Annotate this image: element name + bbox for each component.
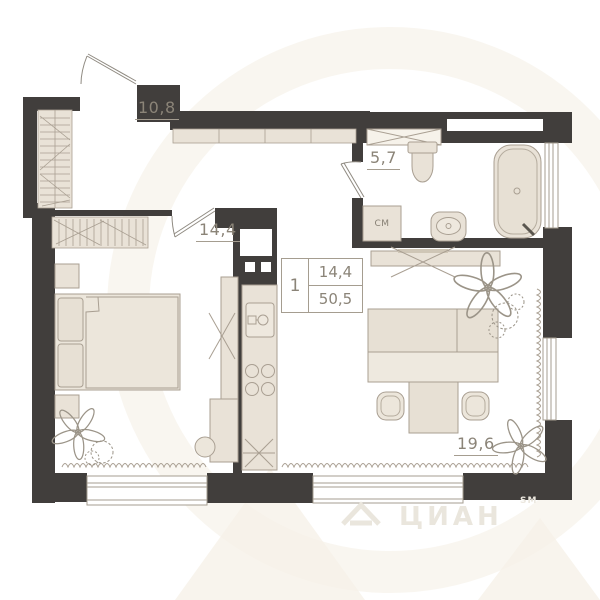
nightstand-bottom [55, 395, 79, 418]
living-furniture [368, 247, 500, 433]
toilet [408, 142, 437, 182]
area-label-bathroom: 5,7 [367, 149, 400, 170]
hall-cabinet-row [173, 129, 356, 143]
blanket [86, 297, 178, 388]
hallway-closet [38, 110, 72, 208]
living-window-right [543, 338, 556, 420]
cian-watermark-text: ЦИАН [399, 502, 503, 532]
wall-bedroom-top [55, 210, 172, 216]
summary-rooms-count: 1 [282, 259, 309, 312]
radiator-living-bottom [282, 464, 528, 468]
kitchen-sink [246, 303, 274, 337]
wall-right-mid [543, 227, 572, 338]
entrance-door [81, 54, 136, 84]
area-label-bedroom: 14,4 [196, 221, 240, 242]
chair-right [462, 392, 489, 420]
nightstand-top [55, 264, 79, 288]
pillow [58, 344, 83, 387]
area-label-living: 19,6 [454, 435, 498, 456]
bathroom-sink [431, 212, 466, 241]
bathroom-door [341, 162, 364, 198]
wall-bottom-right [463, 473, 572, 500]
wall-left [32, 203, 55, 503]
bathroom-niche [447, 119, 543, 131]
table [409, 382, 458, 433]
bed [55, 294, 180, 390]
bathtub [494, 145, 541, 238]
cian-house-icon [343, 505, 379, 524]
kitchen [242, 285, 277, 470]
bedroom-wardrobe [52, 217, 148, 248]
area-label-hallway: 10,8 [135, 99, 179, 120]
floorplan-canvas: 10,8 14,4 5,7 19,6 1 14,4 50,5 СМ ЦИАН S… [0, 0, 600, 600]
bathroom-window [545, 143, 558, 228]
summary-total-area: 50,5 [309, 286, 362, 312]
bedroom-window [87, 476, 207, 505]
bedroom-desk [210, 399, 238, 462]
wall-bottom-left [37, 473, 87, 502]
sofa [368, 309, 498, 382]
wall-bottom-mid [207, 473, 313, 503]
chair-left [377, 392, 404, 420]
wall-top-main [170, 111, 370, 130]
pillow [58, 298, 83, 341]
apartment-summary-box: 1 14,4 50,5 [281, 258, 363, 313]
living-window-bottom [313, 476, 463, 503]
stool [195, 437, 215, 457]
radiator-living-right [537, 289, 541, 457]
cian-watermark-trademark: SM [520, 496, 537, 506]
summary-living-area: 14,4 [309, 259, 362, 286]
washing-machine-label: СМ [363, 206, 401, 241]
